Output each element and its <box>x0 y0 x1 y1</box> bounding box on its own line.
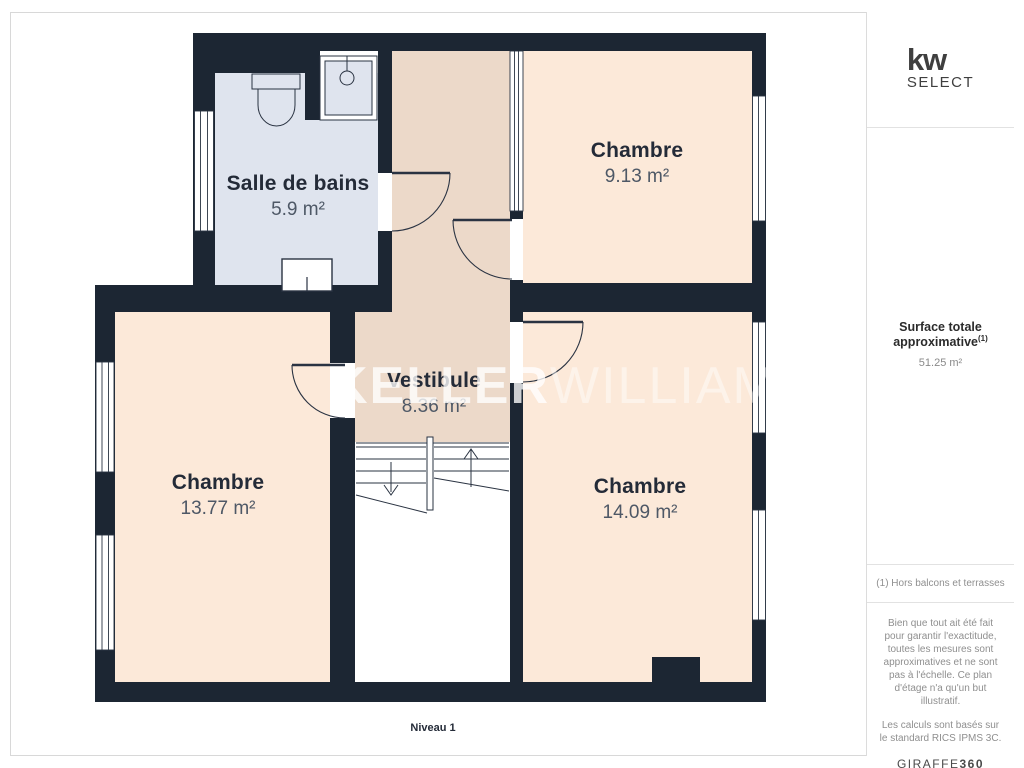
toilet-bowl <box>258 89 295 126</box>
disclaimer-section: Bien que tout ait été fait pour garantir… <box>867 603 1014 768</box>
bedroom2-floor <box>115 312 330 682</box>
floor-level-label: Niveau 1 <box>0 722 866 734</box>
total-area-section: Surface totale approximative(1) 51.25 m² <box>867 128 1014 565</box>
kw-select-logo: kw SELECT <box>907 48 974 90</box>
footnote-section: (1) Hors balcons et terrasses <box>867 565 1014 603</box>
info-sidebar: kw SELECT Surface totale approximative(1… <box>866 12 1014 756</box>
bedroom3-floor <box>523 312 752 682</box>
chimney-block <box>652 657 700 684</box>
toilet-tank <box>252 74 300 89</box>
total-area-title: Surface totale approximative(1) <box>867 320 1014 349</box>
interior-window <box>510 51 523 211</box>
bedroom1-floor <box>523 51 752 283</box>
footnote-text: (1) Hors balcons et terrasses <box>876 578 1004 589</box>
disclaimer-paragraph-2: Les calculs sont basés sur le standard R… <box>877 719 1004 745</box>
kw-logo-subtext: SELECT <box>907 74 974 91</box>
vestibule-floor <box>355 312 510 442</box>
total-area-value: 51.25 m² <box>867 357 1014 369</box>
disclaimer-paragraph-1: Bien que tout ait été fait pour garantir… <box>877 617 1004 708</box>
shower-tray <box>325 61 372 115</box>
giraffe360-logo: GIRAFFE360 <box>877 758 1004 768</box>
kw-logo-text: kw <box>907 48 974 71</box>
floor-plan-page: Salle de bains 5.9 m² Chambre 9.13 m² Ve… <box>0 0 1024 768</box>
footnote-marker: (1) <box>978 334 988 343</box>
brand-logo-section: kw SELECT <box>867 12 1014 128</box>
hall-floor <box>392 51 510 312</box>
